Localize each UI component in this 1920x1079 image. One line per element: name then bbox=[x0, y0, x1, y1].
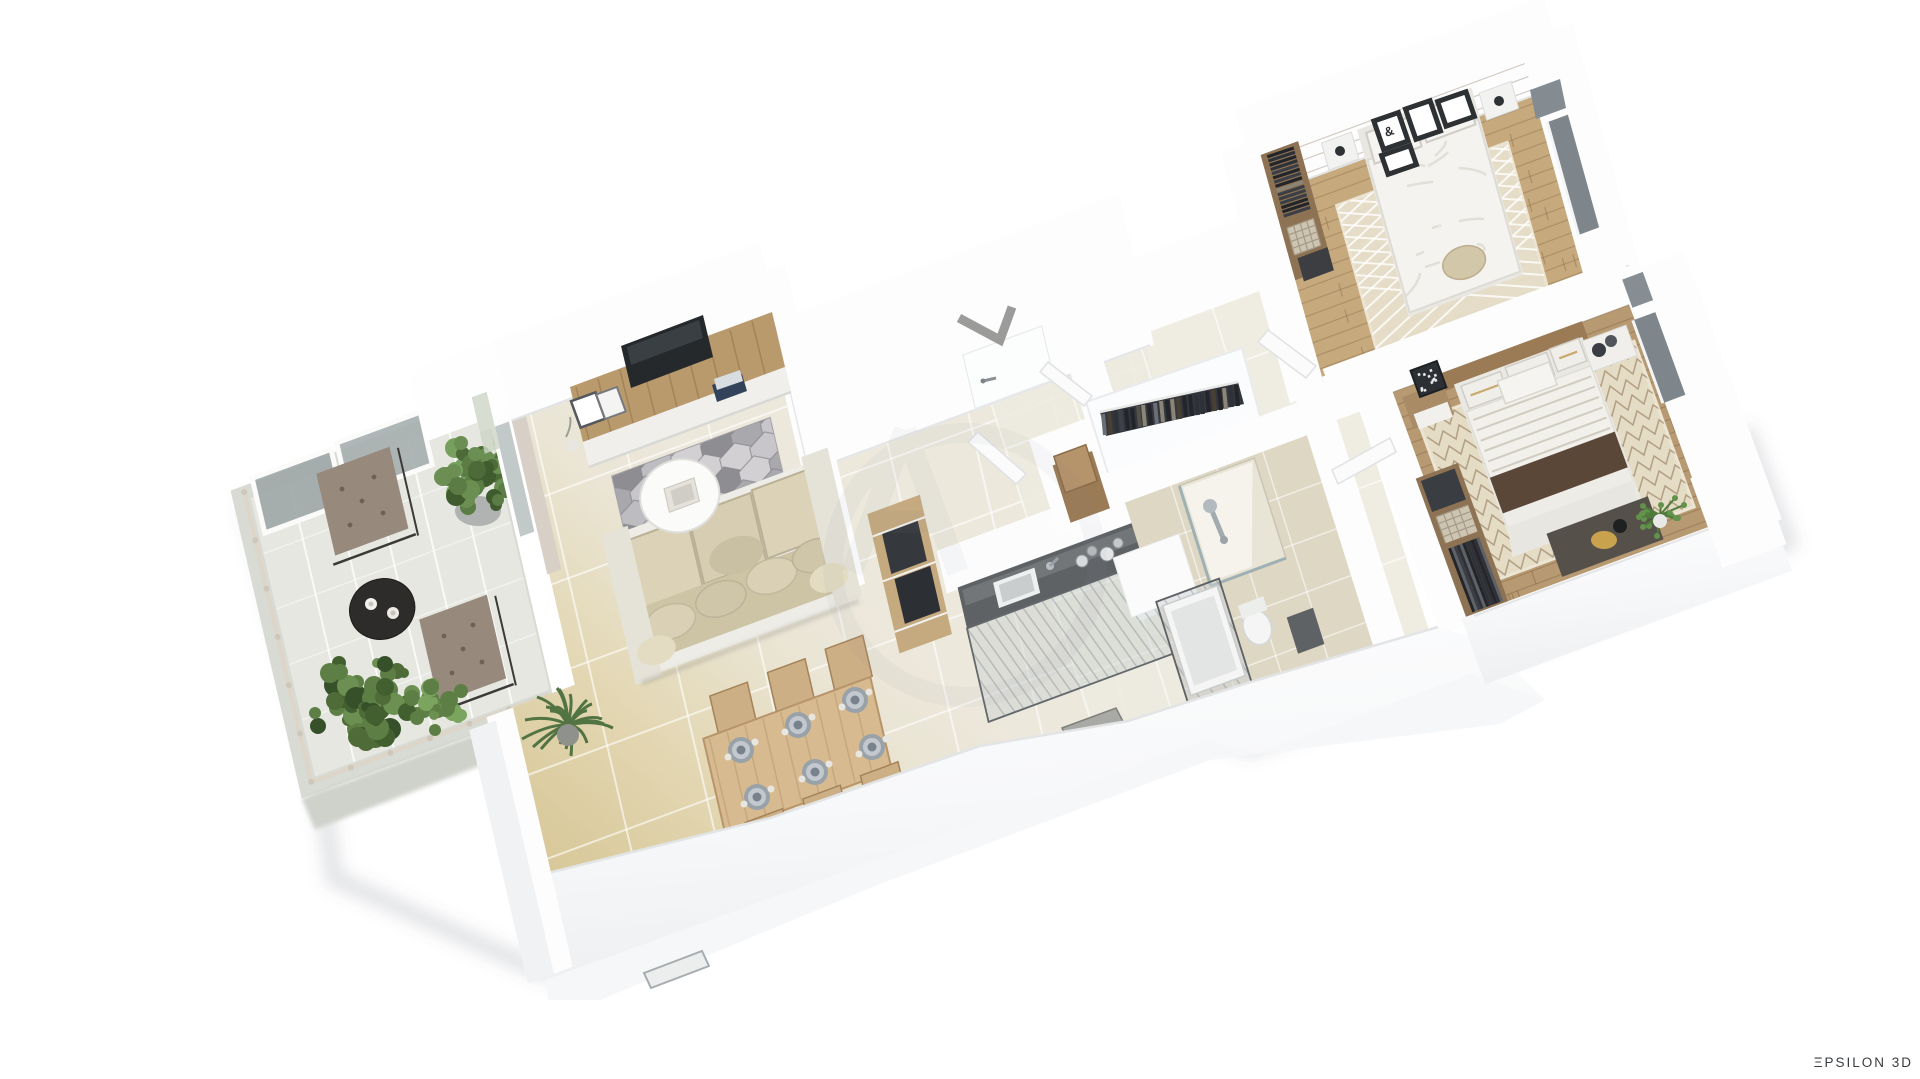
svg-text:ΞPSILON 3D: ΞPSILON 3D bbox=[1814, 1055, 1913, 1070]
